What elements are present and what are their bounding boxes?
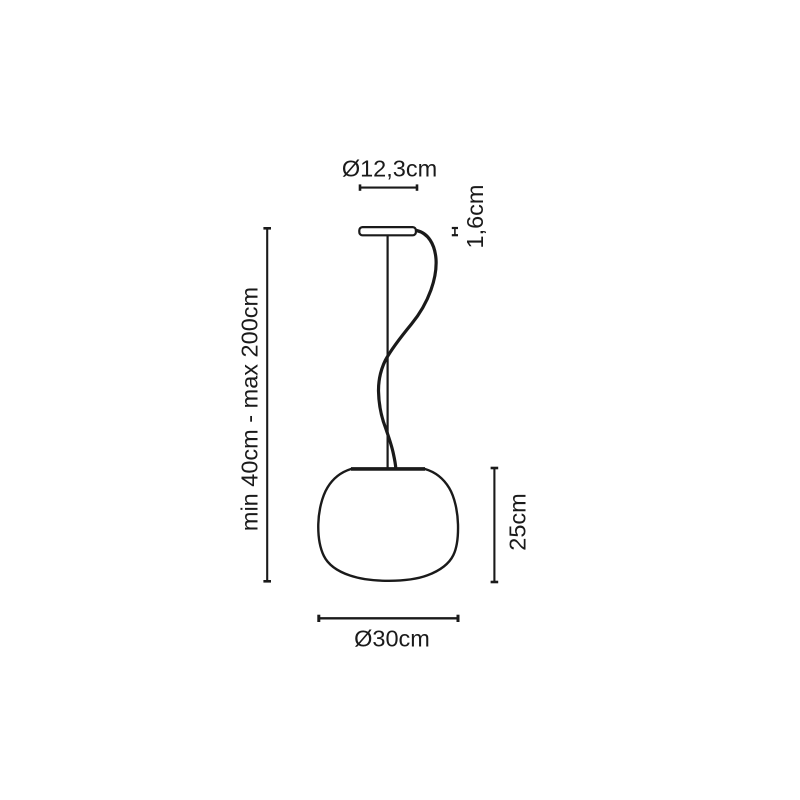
- svg-text:Ø12,3cm: Ø12,3cm: [342, 156, 437, 182]
- svg-text:Ø30cm: Ø30cm: [354, 626, 430, 652]
- svg-text:25cm: 25cm: [505, 493, 531, 550]
- svg-text:min 40cm - max 200cm: min 40cm - max 200cm: [237, 287, 263, 531]
- svg-text:1,6cm: 1,6cm: [462, 185, 488, 249]
